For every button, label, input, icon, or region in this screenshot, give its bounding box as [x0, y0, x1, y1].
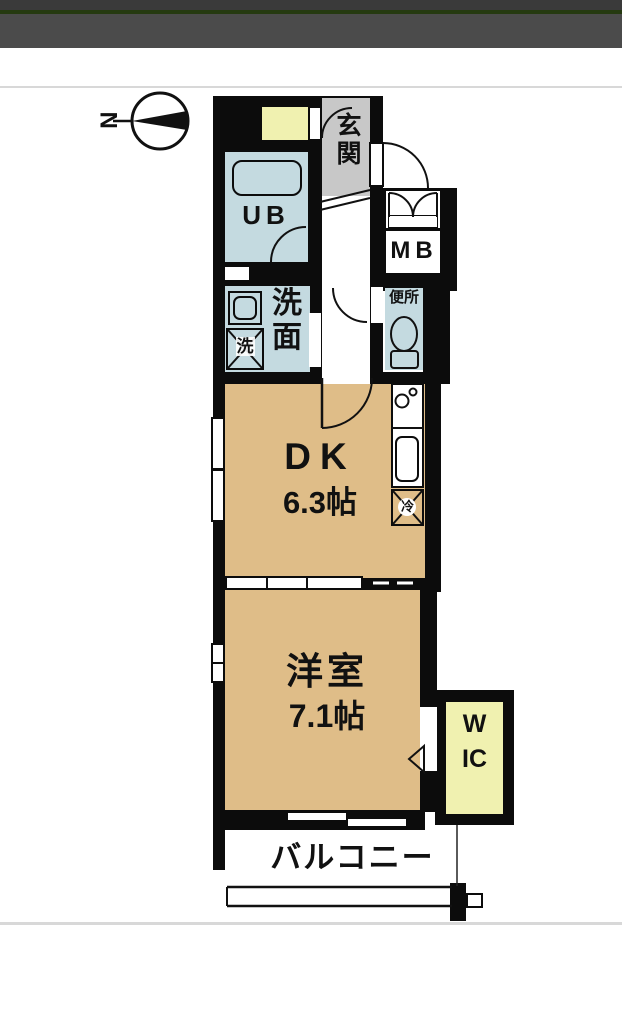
header-bar: [0, 14, 622, 48]
balcony-label: バルコニー: [245, 841, 460, 875]
washroom-vent-window: [225, 267, 249, 280]
genkan-label: 玄関: [336, 112, 362, 168]
balcony-rail-end-box: [466, 893, 483, 908]
meter-box-label: MB: [385, 238, 443, 264]
balcony-post: [450, 883, 466, 921]
toilet-door-opening: [371, 287, 383, 323]
wall-dk-right: [424, 384, 441, 592]
western-window-upper: [211, 643, 225, 664]
wash-basin-bowl: [233, 296, 257, 320]
bathtub: [232, 160, 302, 196]
compass-north-label: N: [97, 106, 123, 134]
entry-storage-box: [308, 106, 322, 141]
kitchen-sink: [395, 436, 419, 482]
wic-label: WIC: [461, 707, 488, 777]
wall-partition-pocket: [363, 576, 425, 590]
dk-door-opening: [322, 372, 370, 384]
page: { "compass": { "label": "N" }, "rooms": …: [0, 0, 622, 1032]
washroom-label: 洗面: [270, 287, 304, 354]
western-room-label: 洋室: [257, 652, 397, 693]
western-room-size-label: 7.1帖: [257, 699, 397, 734]
partition-sliding-door: [225, 576, 363, 590]
washing-machine-char: 洗: [236, 337, 255, 356]
washroom-door-opening: [309, 313, 321, 367]
washing-machine-label: 洗: [227, 338, 263, 357]
balcony-door-panel-left: [287, 812, 347, 821]
unit-bath-label: UB: [238, 201, 294, 230]
dk-size-label: 6.3帖: [250, 486, 390, 520]
dk-window-lower: [211, 469, 225, 522]
balcony-door-panel-right: [347, 818, 407, 827]
front-door-leaf: [369, 142, 384, 187]
shoe-cabinet: [262, 107, 308, 140]
wall-toilet-right: [423, 288, 450, 384]
meter-box-door-panel: [388, 215, 438, 228]
toilet-label: 便所: [385, 290, 423, 307]
wic-opening: [420, 707, 437, 771]
western-window-lower: [211, 662, 225, 683]
fridge-label: 冷: [391, 500, 424, 514]
wall-entry-right-upper: [370, 96, 383, 143]
dk-label: DK: [255, 437, 385, 478]
dk-window-upper: [211, 417, 225, 470]
header-bar-top: [0, 0, 622, 10]
